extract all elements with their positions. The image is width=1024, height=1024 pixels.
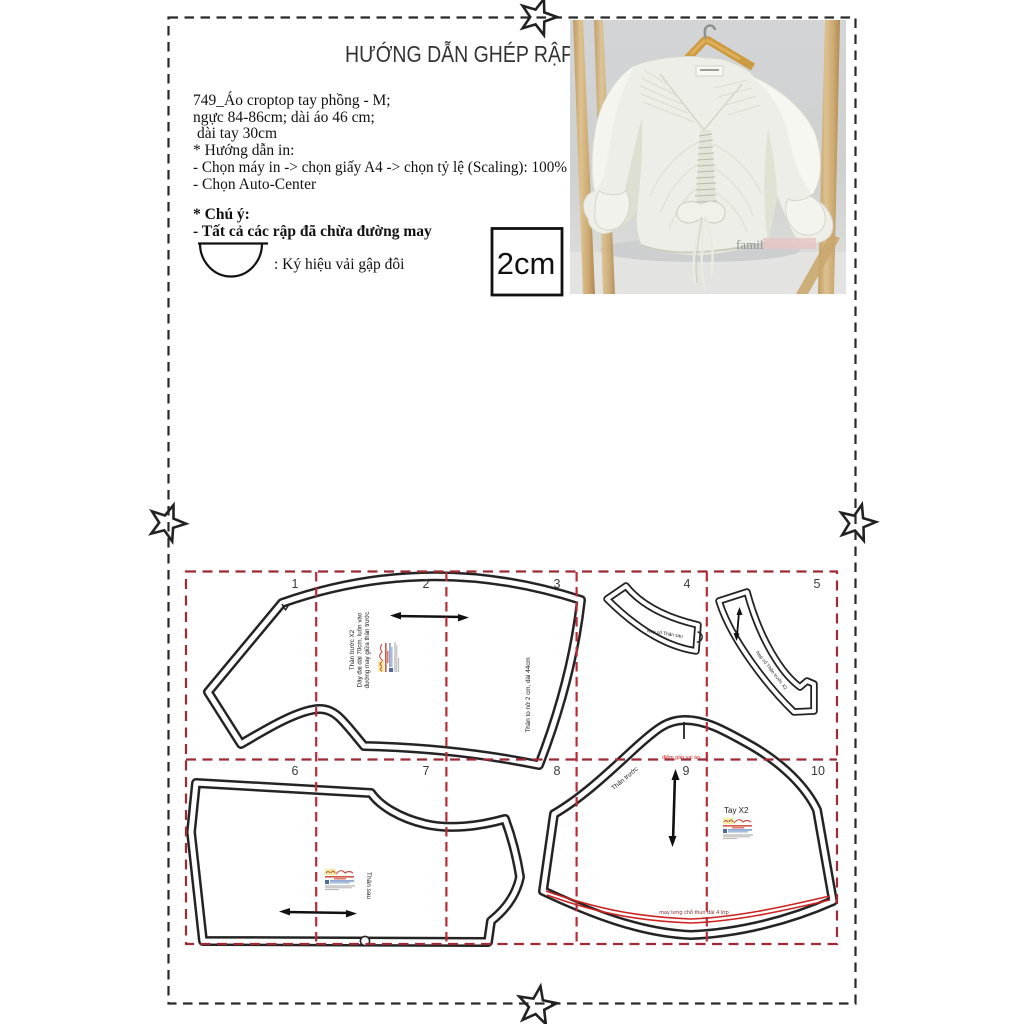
svg-text:HƯỚNG DẪN GHÉP RẬP: HƯỚNG DẪN GHÉP RẬP xyxy=(345,39,574,67)
svg-text:2: 2 xyxy=(423,577,430,591)
svg-text:1: 1 xyxy=(292,577,299,591)
svg-text:* Chú ý:: * Chú ý: xyxy=(193,206,250,223)
svg-text:10: 10 xyxy=(811,764,825,778)
svg-text:6: 6 xyxy=(292,764,299,778)
svg-text:7: 7 xyxy=(423,764,430,778)
svg-text:- Tất cả các rập đã chừa đường: - Tất cả các rập đã chừa đường may xyxy=(193,223,432,240)
svg-text:749_Áo croptop tay phồng - M;: 749_Áo croptop tay phồng - M; xyxy=(193,92,391,109)
svg-text:famil: famil xyxy=(736,237,764,252)
svg-text:- Chọn máy in -> chọn giấy A4: - Chọn máy in -> chọn giấy A4 -> chọn tỷ… xyxy=(193,159,567,176)
svg-text:Thân trước X2: Thân trước X2 xyxy=(349,629,356,670)
svg-text:ngực 84-86cm; dài áo 46 cm;: ngực 84-86cm; dài áo 46 cm; xyxy=(193,109,375,126)
svg-text:4: 4 xyxy=(684,577,691,591)
svg-text:Tay X2: Tay X2 xyxy=(724,806,749,815)
svg-text:2cm: 2cm xyxy=(497,246,556,281)
svg-text:Thân sau: Thân sau xyxy=(365,872,372,899)
svg-text:5: 5 xyxy=(814,577,821,591)
svg-text:* Hướng dẫn in:: * Hướng dẫn in: xyxy=(193,142,294,159)
svg-text:may lưng chỗ thun dài 4 lớp: may lưng chỗ thun dài 4 lớp xyxy=(659,909,729,916)
svg-text:dài tay 30cm: dài tay 30cm xyxy=(197,125,277,142)
svg-text:8: 8 xyxy=(554,764,561,778)
svg-text:- Chọn Auto-Center: - Chọn Auto-Center xyxy=(193,176,317,193)
svg-text:: Ký hiệu vải gập đôi: : Ký hiệu vải gập đôi xyxy=(274,256,405,273)
svg-text:Dây đai dài 70cm, luồn vào: Dây đai dài 70cm, luồn vào xyxy=(357,612,364,687)
svg-text:đường may giữa thân trước: đường may giữa thân trước xyxy=(364,612,371,689)
svg-text:9: 9 xyxy=(683,764,690,778)
svg-text:Thân to nở 2 cm, dài 44cm: Thân to nở 2 cm, dài 44cm xyxy=(524,657,532,732)
svg-text:3: 3 xyxy=(554,577,561,591)
